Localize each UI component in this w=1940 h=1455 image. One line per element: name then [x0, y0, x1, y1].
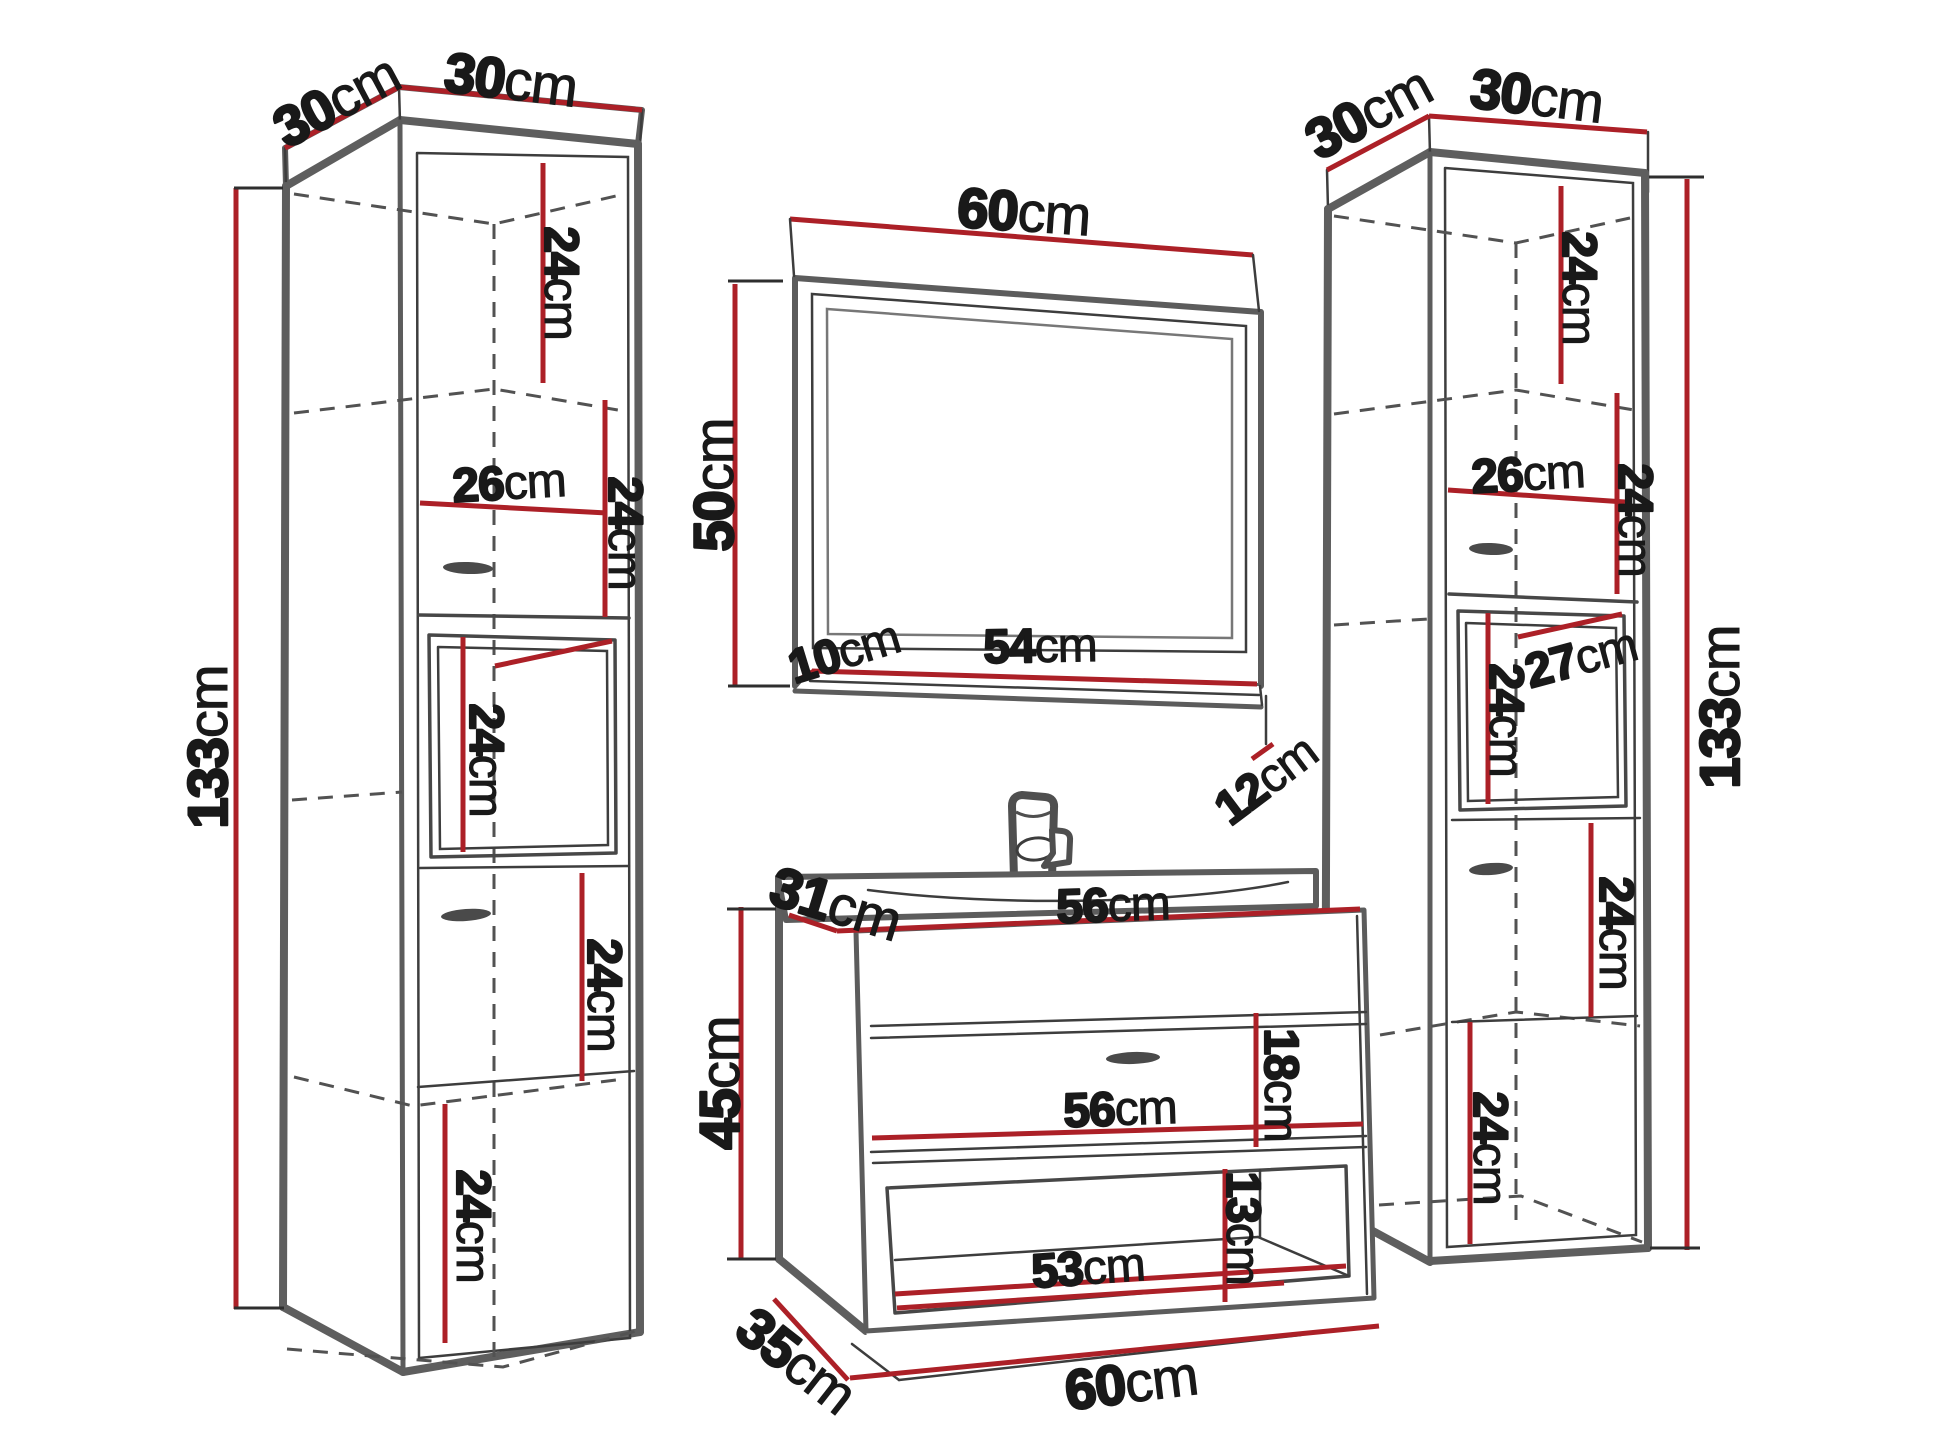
- svg-text:24cm: 24cm: [578, 938, 631, 1051]
- svg-text:24cm: 24cm: [1609, 463, 1662, 576]
- svg-text:54cm: 54cm: [983, 619, 1097, 674]
- svg-text:24cm: 24cm: [599, 476, 652, 589]
- svg-text:50cm: 50cm: [682, 419, 745, 552]
- svg-text:53cm: 53cm: [1030, 1238, 1147, 1299]
- svg-text:24cm: 24cm: [1590, 876, 1643, 989]
- svg-text:60cm: 60cm: [955, 175, 1092, 247]
- svg-text:56cm: 56cm: [1062, 1081, 1177, 1138]
- svg-text:24cm: 24cm: [1480, 663, 1533, 776]
- svg-text:24cm: 24cm: [460, 703, 513, 816]
- svg-text:133cm: 133cm: [176, 665, 239, 828]
- svg-text:24cm: 24cm: [447, 1169, 500, 1282]
- svg-text:45cm: 45cm: [688, 1017, 751, 1150]
- svg-text:133cm: 133cm: [1688, 625, 1751, 788]
- svg-text:24cm: 24cm: [1553, 231, 1606, 344]
- svg-text:24cm: 24cm: [1464, 1091, 1517, 1204]
- svg-text:56cm: 56cm: [1055, 877, 1170, 934]
- svg-text:24cm: 24cm: [535, 226, 588, 339]
- svg-text:26cm: 26cm: [451, 454, 567, 513]
- svg-text:18cm: 18cm: [1255, 1028, 1308, 1141]
- svg-text:13cm: 13cm: [1217, 1171, 1270, 1284]
- svg-text:26cm: 26cm: [1470, 445, 1586, 504]
